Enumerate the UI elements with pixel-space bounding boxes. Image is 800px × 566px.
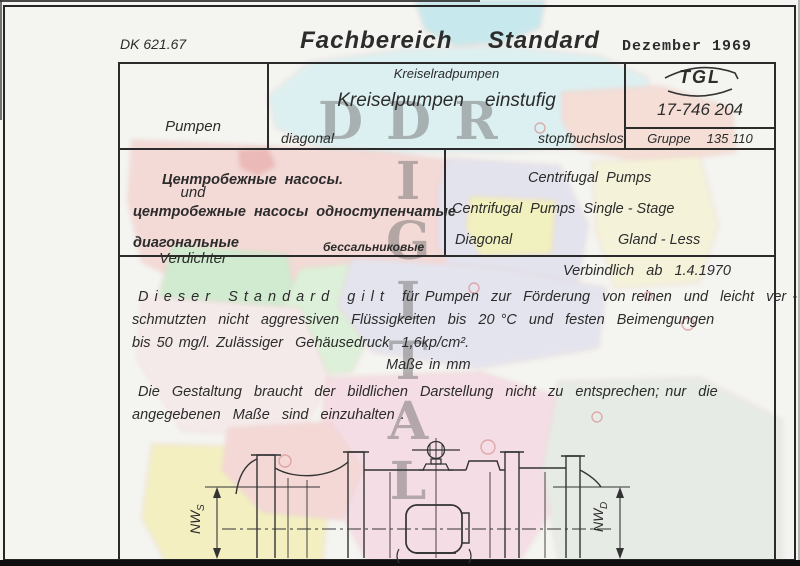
- dimension-nws: [205, 487, 320, 559]
- dimension-label-nws: NW S: [187, 504, 207, 534]
- nws-label-main: NW: [187, 509, 203, 534]
- nws-label-sub: S: [196, 504, 207, 511]
- bearing-housing: [397, 505, 471, 563]
- nwd-label-main: NW: [590, 507, 606, 532]
- extension-lines: [288, 438, 545, 558]
- dimension-label-nwd: NW D: [590, 502, 610, 532]
- scanned-standard-document: DDRIGITAL DK 621.67 Fachbereich Standard…: [0, 0, 800, 566]
- pump-technical-drawing: NW S NW D: [0, 0, 800, 566]
- nwd-label-sub: D: [599, 502, 610, 509]
